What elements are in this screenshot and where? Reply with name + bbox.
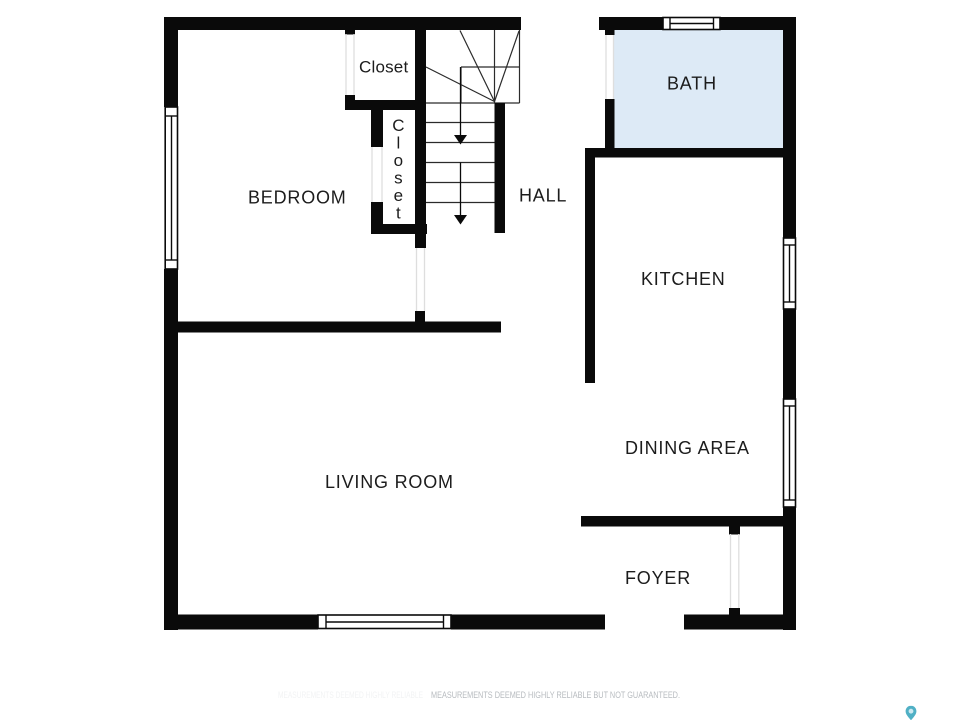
svg-text:e: e bbox=[394, 186, 404, 205]
svg-text:BATH: BATH bbox=[667, 74, 717, 94]
svg-text:HALL: HALL bbox=[519, 186, 567, 206]
svg-text:MEASUREMENTS DEEMED HIGHLY REL: MEASUREMENTS DEEMED HIGHLY RELIABLE BUT … bbox=[431, 690, 680, 700]
svg-text:MEASUREMENTS DEEMED HIGHLY REL: MEASUREMENTS DEEMED HIGHLY RELIABLE bbox=[278, 690, 423, 700]
svg-text:l: l bbox=[397, 134, 401, 153]
svg-text:o: o bbox=[394, 151, 404, 170]
svg-text:DINING AREA: DINING AREA bbox=[625, 438, 750, 458]
svg-text:t: t bbox=[396, 204, 401, 223]
svg-text:FOYER: FOYER bbox=[625, 568, 691, 588]
svg-text:C: C bbox=[392, 116, 404, 135]
svg-text:KITCHEN: KITCHEN bbox=[641, 269, 726, 289]
svg-text:BEDROOM: BEDROOM bbox=[248, 188, 347, 208]
svg-text:s: s bbox=[394, 169, 403, 188]
svg-text:Closet: Closet bbox=[359, 58, 408, 77]
svg-text:LIVING ROOM: LIVING ROOM bbox=[325, 472, 454, 492]
